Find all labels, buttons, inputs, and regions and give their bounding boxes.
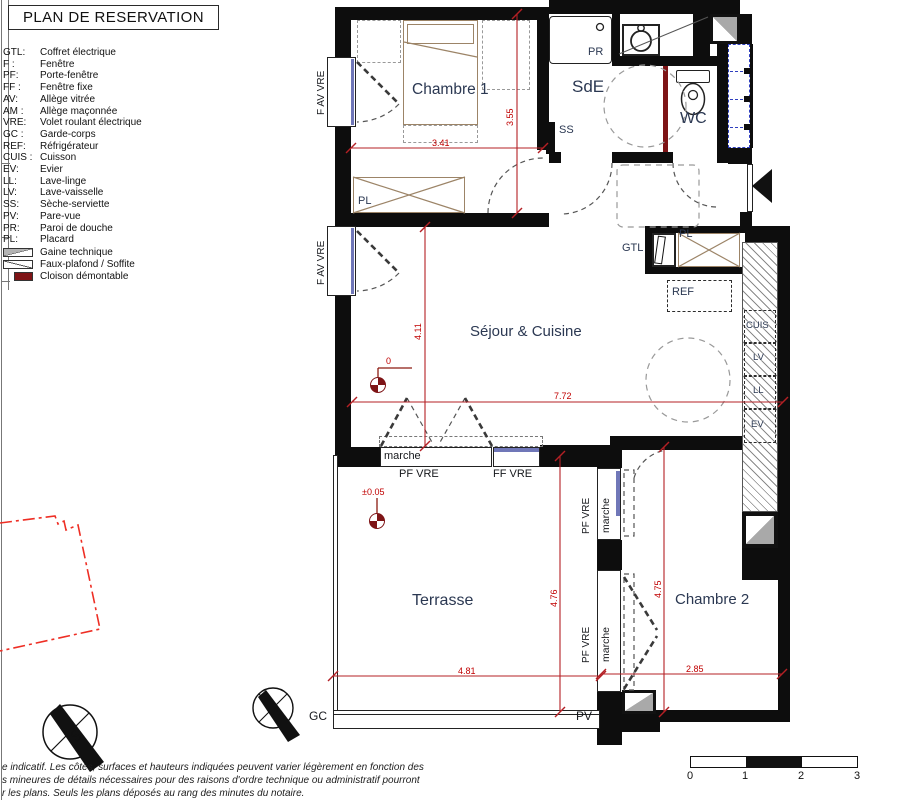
window-glass-line — [351, 59, 354, 125]
legend-label: Allège maçonnée — [40, 106, 117, 118]
placard-support — [744, 124, 750, 130]
scale-segment — [691, 757, 746, 767]
wall-segment — [540, 445, 610, 467]
legend-abbr: REF: — [3, 141, 40, 153]
dim-terrasse-width: 4.81 — [458, 667, 476, 676]
window-glass-line — [494, 448, 539, 452]
scale-segment — [802, 757, 857, 767]
wall-segment — [622, 714, 660, 732]
legend-abbr: CUIS : — [3, 152, 40, 164]
dim-chambre1-height: 3.55 — [506, 108, 515, 126]
legend-row: LV:Lave-vaisselle — [3, 187, 243, 199]
disclaimer-line: s mineures de détails nécessaires pour d… — [2, 776, 420, 786]
window-glass-line — [351, 228, 354, 294]
annotation-ll: LL — [753, 386, 764, 396]
wall-segment — [335, 447, 380, 467]
floor-plan-sheet: PLAN DE RESERVATION GTL:Coffret électriq… — [0, 0, 919, 800]
window-glass-line — [616, 471, 620, 516]
legend-abbr: SS: — [3, 199, 40, 211]
legend-abbr: LV: — [3, 187, 40, 199]
scale-tick: 2 — [798, 771, 804, 782]
wall-segment — [335, 7, 549, 20]
legend-row: GTL:Coffret électrique — [3, 47, 243, 59]
gaine-technique-box — [622, 690, 656, 714]
annotation-f-av-vre: F AV VRE — [317, 71, 327, 115]
annotation-pf-vre: PF VRE — [582, 627, 592, 663]
dim-chambre2-width: 2.85 — [686, 665, 704, 674]
legend-row: PV:Pare-vue — [3, 211, 243, 223]
legend-label: Placard — [40, 234, 74, 246]
level-zero-label: 0 — [386, 357, 391, 366]
south-label: S — [68, 727, 86, 746]
sheet-border-line — [1, 0, 2, 800]
site-boundary-outline — [0, 516, 100, 651]
legend: GTL:Coffret électrique F :Fenêtre PF:Por… — [3, 47, 243, 283]
annotation-marche: marche — [601, 627, 612, 662]
gaine-technique-box — [710, 14, 740, 44]
wall-segment — [549, 0, 740, 14]
annotation-ff-vre: FF VRE — [493, 469, 532, 480]
wall-segment — [612, 56, 717, 66]
annotation-gtl: GTL — [622, 243, 643, 254]
wall-segment — [693, 14, 710, 56]
scale-tick: 1 — [742, 771, 748, 782]
legend-abbr: PF: — [3, 70, 40, 82]
towel-radiator — [546, 122, 555, 154]
legend-row: REF:Réfrigérateur — [3, 141, 243, 153]
scale-bar — [690, 756, 858, 768]
annotation-pr: PR — [588, 47, 603, 58]
furniture-outline — [482, 20, 530, 90]
level-marker — [370, 377, 386, 393]
wall-segment — [742, 548, 778, 580]
wall-segment — [778, 226, 790, 722]
legend-row: EV:Evier — [3, 164, 243, 176]
dim-sejour-width: 7.72 — [554, 392, 572, 401]
wall-segment — [750, 44, 753, 148]
wall-segment — [612, 152, 673, 163]
dim-terrasse-height: 4.76 — [550, 589, 559, 607]
legend-row: LL:Lave-linge — [3, 176, 243, 188]
legend-label: Fenêtre — [40, 59, 74, 71]
scale-tick: 0 — [687, 771, 693, 782]
legend-label: Garde-corps — [40, 129, 96, 141]
room-label-wc: WC — [680, 111, 707, 127]
guardrail-inner-line — [334, 714, 599, 715]
wall-segment — [597, 540, 622, 570]
entry-door — [747, 164, 753, 212]
scale-segment — [746, 757, 801, 767]
legend-symbol-row: Gaine technique — [3, 246, 243, 258]
legend-row: FF :Fenêtre fixe — [3, 82, 243, 94]
annotation-f-av-vre: F AV VRE — [317, 241, 327, 285]
dim-chambre2-height: 4.75 — [654, 580, 663, 598]
annotation-cuis: CUIS — [746, 321, 769, 331]
wall-segment — [717, 152, 740, 163]
south-label: S — [271, 703, 285, 718]
disclaimer-line: r les plans. Seuls les plans déposés au … — [2, 789, 304, 799]
wall-segment — [351, 213, 549, 227]
faux-plafond-swatch — [3, 260, 33, 269]
legend-label: Cloison démontable — [40, 271, 128, 282]
annotation-marche: marche — [384, 451, 421, 462]
legend-label: Cuisson — [40, 152, 76, 164]
legend-label: Volet roulant électrique — [40, 117, 142, 129]
placard-support — [744, 68, 750, 74]
cloison-demontable-swatch — [14, 272, 33, 281]
legend-row: SS:Sèche-serviette — [3, 199, 243, 211]
gaine-technique-box — [742, 512, 778, 548]
legend-row: AV:Allège vitrée — [3, 94, 243, 106]
legend-row: PF:Porte-fenêtre — [3, 70, 243, 82]
annotation-pv: PV — [576, 710, 592, 722]
legend-abbr: FF : — [3, 82, 40, 94]
legend-symbol-row: Faux-plafond / Soffite — [3, 258, 243, 270]
legend-row: PR:Paroi de douche — [3, 223, 243, 235]
wall-segment — [645, 226, 652, 274]
legend-row: PL:Placard — [3, 234, 243, 246]
legend-label: Fenêtre fixe — [40, 82, 93, 94]
annotation-pl: PL — [358, 196, 371, 207]
legend-abbr: PV: — [3, 211, 40, 223]
legend-label: Evier — [40, 164, 63, 176]
annotation-marche: marche — [601, 498, 612, 533]
placard-support — [744, 96, 750, 102]
disclaimer-line: e indicatif. Les côtes, surfaces et haut… — [2, 763, 424, 773]
legend-abbr: PL: — [3, 234, 40, 246]
scale-tick: 3 — [854, 771, 860, 782]
legend-label: Allège vitrée — [40, 94, 95, 106]
terrace-side-rail — [333, 455, 338, 711]
legend-abbr: LL: — [3, 176, 40, 188]
compass-icon: S — [253, 688, 300, 742]
annotation-pf-vre: PF VRE — [399, 469, 439, 480]
legend-row: F :Fenêtre — [3, 59, 243, 71]
entrance-arrow-icon — [752, 169, 772, 203]
bed-pillow — [407, 24, 474, 44]
legend-abbr: F : — [3, 59, 40, 71]
legend-abbr: PR: — [3, 223, 40, 235]
annotation-pl: PL — [679, 229, 692, 240]
annotation-ref: REF — [672, 287, 694, 298]
legend-row: GC :Garde-corps — [3, 129, 243, 141]
guardrail — [333, 710, 600, 729]
soffit-outline — [379, 436, 543, 447]
wall-segment — [610, 436, 742, 450]
legend-label: Porte-fenêtre — [40, 70, 98, 82]
legend-label: Paroi de douche — [40, 223, 113, 235]
wall-segment — [645, 267, 745, 274]
legend-label: Lave-linge — [40, 176, 86, 188]
wall-segment — [656, 710, 790, 722]
room-label-terrasse: Terrasse — [412, 593, 473, 609]
legend-label: Réfrigérateur — [40, 141, 98, 153]
legend-abbr: GTL: — [3, 47, 40, 59]
title-box: PLAN DE RESERVATION — [8, 5, 219, 30]
room-label-chambre2: Chambre 2 — [675, 592, 749, 607]
legend-label: Lave-vaisselle — [40, 187, 103, 199]
cloison-demontable-wall — [663, 66, 668, 152]
dim-sejour-height: 4.11 — [414, 323, 423, 340]
legend-row: VRE:Volet roulant électrique — [3, 117, 243, 129]
room-label-sejour: Séjour & Cuisine — [470, 324, 582, 339]
legend-row: AM :Allège maçonnée — [3, 106, 243, 118]
legend-symbol-row: Cloison démontable — [3, 271, 243, 283]
legend-label: Faux-plafond / Soffite — [40, 259, 135, 270]
dim-chambre1-width: 3.41 — [432, 139, 450, 148]
toilet-tank — [676, 70, 710, 83]
annotation-pf-vre: PF VRE — [582, 498, 592, 534]
level-marker — [369, 513, 385, 529]
legend-row: CUIS :Cuisson — [3, 152, 243, 164]
washbasin-cabinet — [622, 24, 660, 56]
legend-label: Coffret électrique — [40, 47, 116, 59]
legend-abbr: GC : — [3, 129, 40, 141]
legend-abbr: VRE: — [3, 117, 40, 129]
annotation-lv: LV — [753, 353, 764, 363]
page-title: PLAN DE RESERVATION — [23, 9, 204, 26]
annotation-ss: SS — [559, 125, 574, 136]
legend-label: Gaine technique — [40, 247, 113, 258]
legend-label: Pare-vue — [40, 211, 81, 223]
room-label-chambre1: Chambre 1 — [412, 82, 489, 98]
annotation-ev: EV — [751, 420, 764, 430]
room-label-sde: SdE — [572, 78, 604, 95]
furniture-outline — [357, 20, 401, 63]
legend-abbr: EV: — [3, 164, 40, 176]
legend-abbr: AV: — [3, 94, 40, 106]
level-terrasse-label: ±0.05 — [362, 488, 384, 497]
gaine-technique-swatch — [3, 248, 33, 257]
annotation-gc: GC — [309, 710, 327, 722]
wall-segment — [645, 226, 745, 233]
legend-abbr: AM : — [3, 106, 40, 118]
legend-label: Sèche-serviette — [40, 199, 109, 211]
wall-segment — [597, 692, 622, 745]
